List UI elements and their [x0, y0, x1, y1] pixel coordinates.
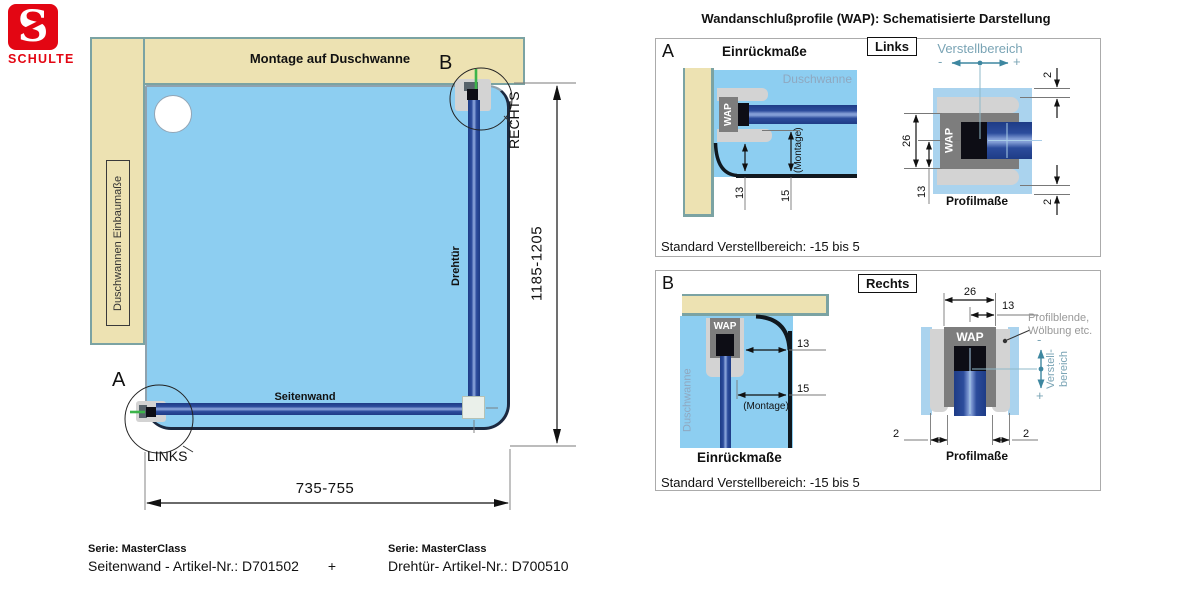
panel-a-dim-13b: 13 — [916, 179, 928, 205]
panel-b-cs-wap-label: WAP — [944, 329, 996, 344]
panel-a-montage-label: (Montage) — [792, 121, 805, 179]
verstell-line-1: Verstell- — [1045, 337, 1058, 401]
seitenwand-label: Seitenwand — [270, 390, 340, 403]
wap-section-title: Wandanschlußprofile (WAP): Schematisiert… — [650, 10, 1102, 26]
corner-connector — [462, 396, 485, 419]
panel-b-montage-label: (Montage) — [736, 400, 796, 412]
panel-a-standard-note: Standard Verstellbereich: -15 bis 5 — [661, 239, 860, 254]
panel-b-cs-glass — [954, 371, 986, 416]
panel-a-dim-26: 26 — [901, 127, 913, 155]
schulte-logo-mark: S — [8, 4, 58, 50]
panel-a-dim-2-top: 2 — [1042, 65, 1054, 85]
panel-a-cs-wap-label: WAP — [941, 114, 958, 166]
panel-a-einrueckmasse-label: Einrückmaße — [722, 44, 807, 59]
panel-a-minus-label: - — [938, 54, 942, 69]
drehtuer-glass — [468, 100, 480, 404]
panel-a-id: A — [662, 41, 674, 62]
schulte-installation-drawing: Duschwannen Einbaumaße — [0, 0, 1196, 600]
panel-b-glass — [720, 356, 731, 448]
wall-profile-b-glass-end — [467, 89, 478, 100]
panel-a-cs-clamp — [961, 122, 987, 159]
width-dimension: 735-755 — [273, 480, 377, 497]
panel-b-minus-label: - — [1037, 332, 1041, 347]
panel-a-cs-upper — [937, 97, 1019, 113]
profilblende-line-1: Profilblende, — [1028, 312, 1100, 325]
panel-b-wap-label: WAP — [710, 320, 740, 333]
footer-plus: + — [320, 558, 344, 574]
panel-b-profilmasse-label: Profilmaße — [938, 449, 1016, 463]
drain-circle — [154, 95, 192, 133]
seitenwand-glass — [156, 403, 464, 415]
links-label: LINKS — [147, 448, 187, 464]
panel-b-cs-clamp — [954, 346, 986, 371]
panel-b-dim-2-left: 2 — [893, 428, 899, 440]
height-dimension: 1185-1205 — [528, 217, 546, 309]
wall-profile-a-glass-end — [146, 407, 156, 417]
panel-b-einrueckmasse-label: Einrückmaße — [697, 450, 782, 465]
panel-a-wap-label: WAP — [719, 98, 738, 131]
footer-serie-right: Serie: MasterClass — [388, 543, 486, 555]
footer-article-left: Seitenwand - Artikel-Nr.: D701502 — [88, 558, 299, 574]
verstell-line-2: bereich — [1058, 337, 1071, 401]
panel-a-wall — [683, 68, 714, 217]
panel-b-tray-edge — [788, 331, 792, 448]
detail-b-label: B — [439, 52, 452, 75]
panel-a-plus-label: + — [1013, 54, 1021, 69]
panel-b-id: B — [662, 273, 674, 294]
panel-a-verstellbereich-label: Verstellbereich — [934, 41, 1026, 55]
panel-b-verstellbereich-label: Verstell- bereich — [1045, 337, 1071, 401]
montage-label: Montage auf Duschwanne — [150, 50, 510, 66]
panel-a-duschwanne-label: Duschwanne — [766, 72, 852, 86]
panel-a-dim-2-bottom: 2 — [1042, 192, 1054, 212]
panel-b-side-tag: Rechts — [858, 274, 917, 293]
panel-b-standard-note: Standard Verstellbereich: -15 bis 5 — [661, 475, 860, 490]
wall-left-label-box: Duschwannen Einbaumaße — [106, 160, 130, 326]
panel-b-dim-15: 15 — [797, 383, 809, 395]
drehtuer-label: Drehtür — [448, 228, 464, 304]
footer-serie-left: Serie: MasterClass — [88, 543, 186, 555]
panel-b-dim-13: 13 — [797, 338, 809, 350]
panel-b-plus-label: + — [1036, 388, 1044, 403]
panel-b-duschwanne-label: Duschwanne — [681, 360, 694, 440]
panel-a-cs-glass — [987, 122, 1032, 159]
panel-a-dim-15: 15 — [780, 182, 792, 210]
rechts-label: RECHTS — [505, 88, 523, 152]
panel-a-dim-13: 13 — [734, 179, 746, 207]
panel-b-dim-26: 26 — [958, 285, 982, 298]
panel-a-cs-lower — [937, 169, 1019, 185]
detail-a-label: A — [112, 369, 125, 392]
footer-article-right: Drehtür- Artikel-Nr.: D700510 — [388, 558, 569, 574]
panel-b-glass-clamp — [716, 334, 734, 356]
panel-b-dim-2-right: 2 — [1023, 428, 1029, 440]
panel-a-side-tag: Links — [867, 37, 917, 56]
panel-a-glass-clamp — [738, 103, 749, 126]
panel-b-wall — [682, 294, 829, 316]
panel-b-dim-13b: 13 — [1002, 300, 1014, 312]
panel-a-profilmasse-label: Profilmaße — [938, 194, 1016, 208]
logo-brand-name: SCHULTE — [8, 52, 70, 66]
schulte-logo: S SCHULTE — [8, 4, 70, 68]
